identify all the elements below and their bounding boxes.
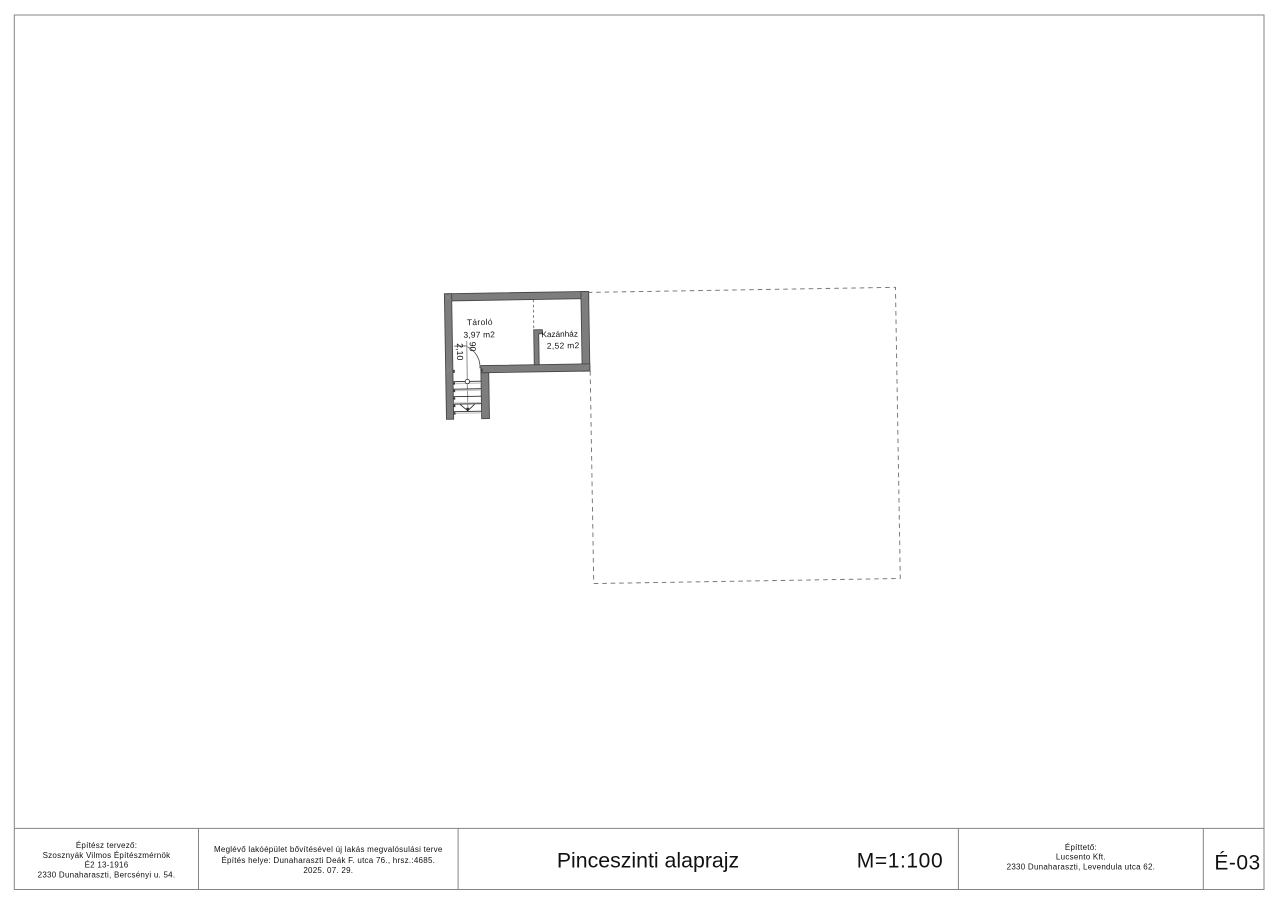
svg-text:2,52 m2: 2,52 m2 bbox=[547, 340, 580, 351]
svg-text:Meglévő lakóépület bővítésével: Meglévő lakóépület bővítésével új lakás … bbox=[214, 845, 443, 854]
svg-text:É2 13-1916: É2 13-1916 bbox=[85, 861, 129, 870]
svg-text:2330 Dunaharaszti, Bercsényi u: 2330 Dunaharaszti, Bercsényi u. 54. bbox=[38, 870, 176, 879]
svg-text:Építtető:: Építtető: bbox=[1065, 843, 1097, 852]
svg-text:Szosznyák Vilmos Építészmérnök: Szosznyák Vilmos Építészmérnök bbox=[43, 851, 172, 860]
svg-text:Építész tervező:: Építész tervező: bbox=[76, 841, 137, 850]
svg-text:90: 90 bbox=[468, 342, 478, 352]
svg-text:Pinceszinti alaprajz: Pinceszinti alaprajz bbox=[557, 848, 739, 872]
svg-text:Kazánház: Kazánház bbox=[541, 330, 578, 340]
svg-text:Lucsento Kft.: Lucsento Kft. bbox=[1056, 853, 1106, 862]
svg-text:2025. 07. 29.: 2025. 07. 29. bbox=[303, 866, 353, 875]
svg-text:Építés helye: Dunaharaszti Deá: Építés helye: Dunaharaszti Deák F. utca … bbox=[221, 856, 435, 865]
svg-text:É-03: É-03 bbox=[1214, 851, 1260, 874]
svg-text:3,97 m2: 3,97 m2 bbox=[463, 329, 495, 340]
svg-text:2,10: 2,10 bbox=[455, 343, 465, 360]
svg-text:M=1:100: M=1:100 bbox=[857, 849, 944, 872]
svg-text:2330 Dunaharaszti, Levendula u: 2330 Dunaharaszti, Levendula utca 62. bbox=[1007, 862, 1155, 871]
svg-text:Tároló: Tároló bbox=[467, 317, 493, 327]
